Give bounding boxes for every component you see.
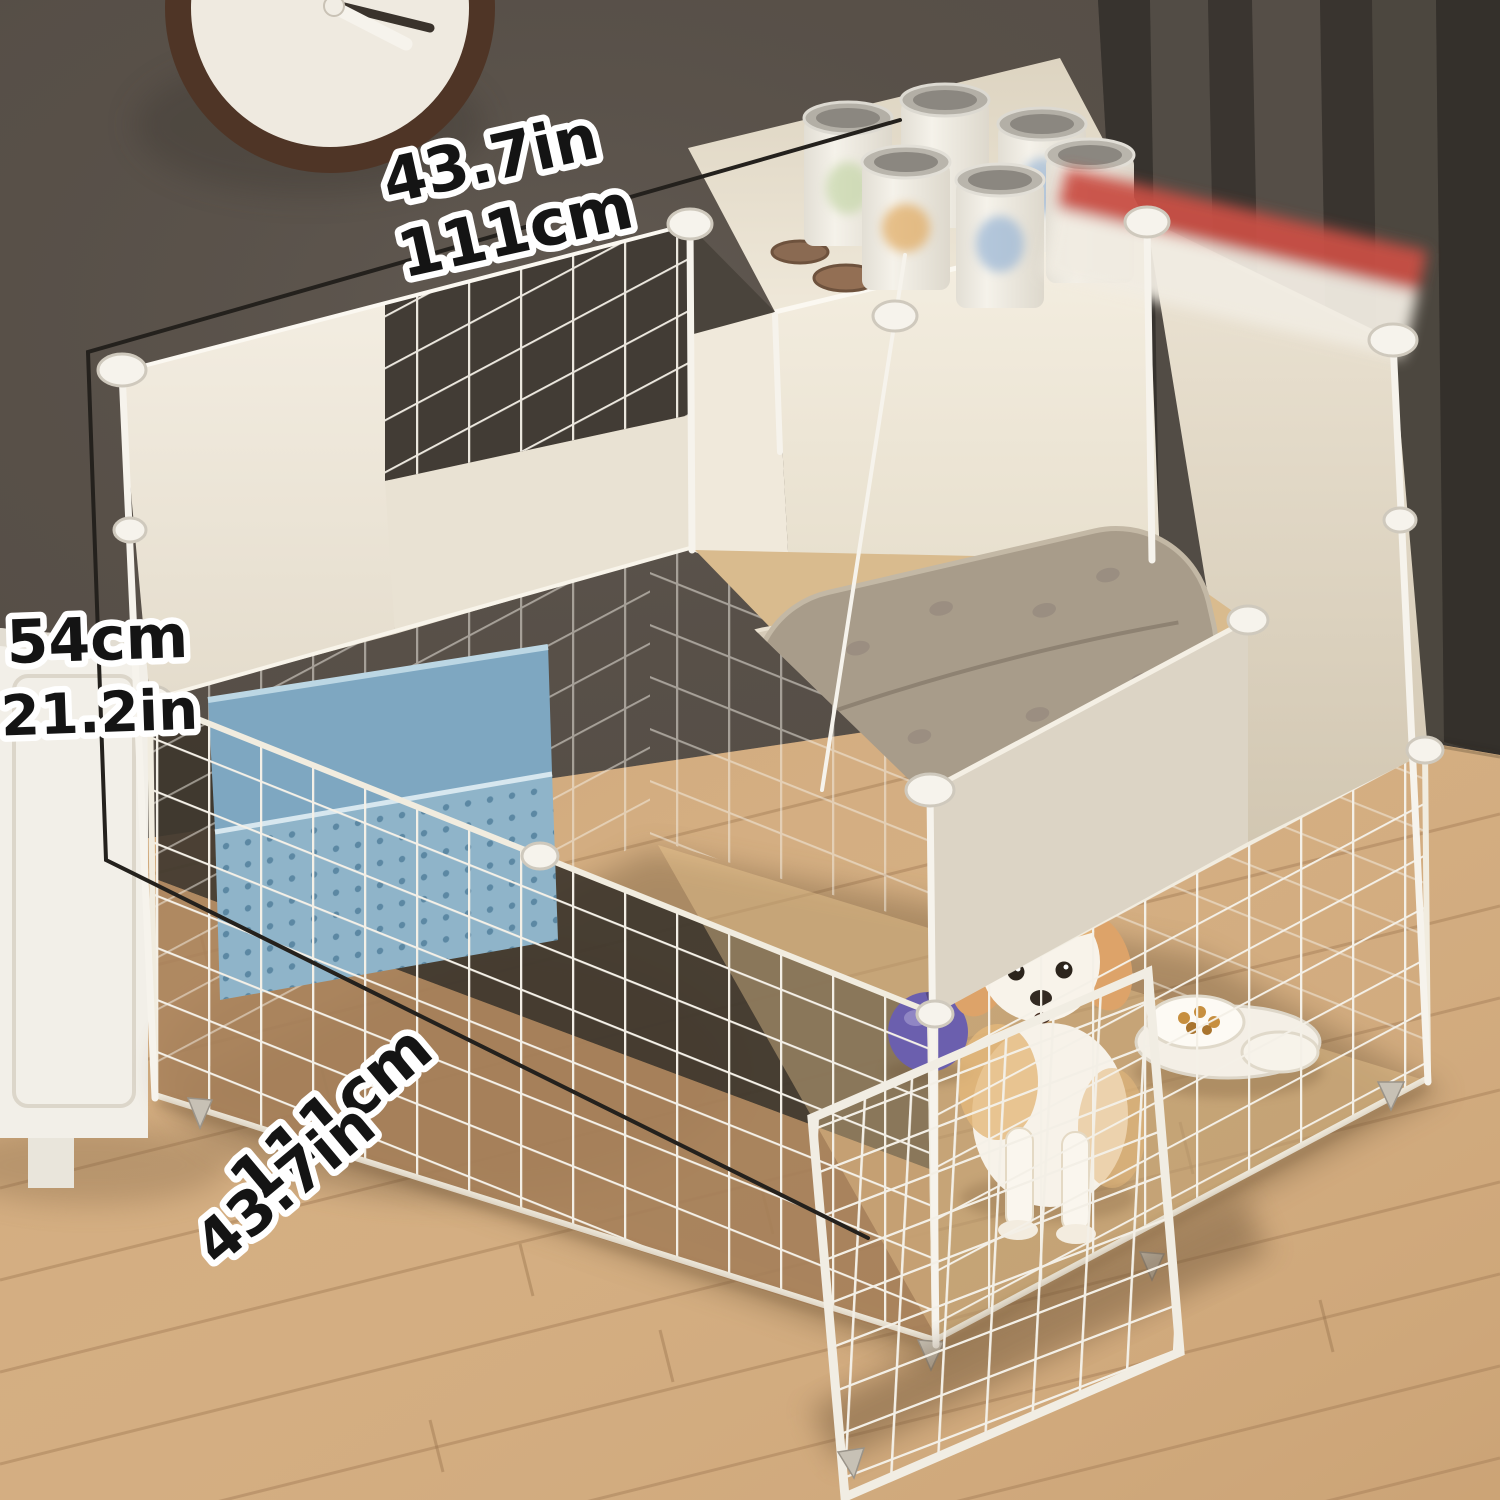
dimension-label-side-inches: 21.2in (0, 678, 199, 750)
nightstand-foot (28, 1138, 74, 1188)
food-can (862, 146, 950, 290)
clock-center-cap (324, 0, 344, 16)
dimension-label-side-cm: 54cm (5, 602, 189, 678)
scene: 43.7in 111cm 54cm 21.2in 111cm 43.7in (0, 0, 1500, 1500)
food-can (956, 164, 1044, 308)
product-photo: 43.7in 111cm 54cm 21.2in 111cm 43.7in (0, 0, 1500, 1500)
